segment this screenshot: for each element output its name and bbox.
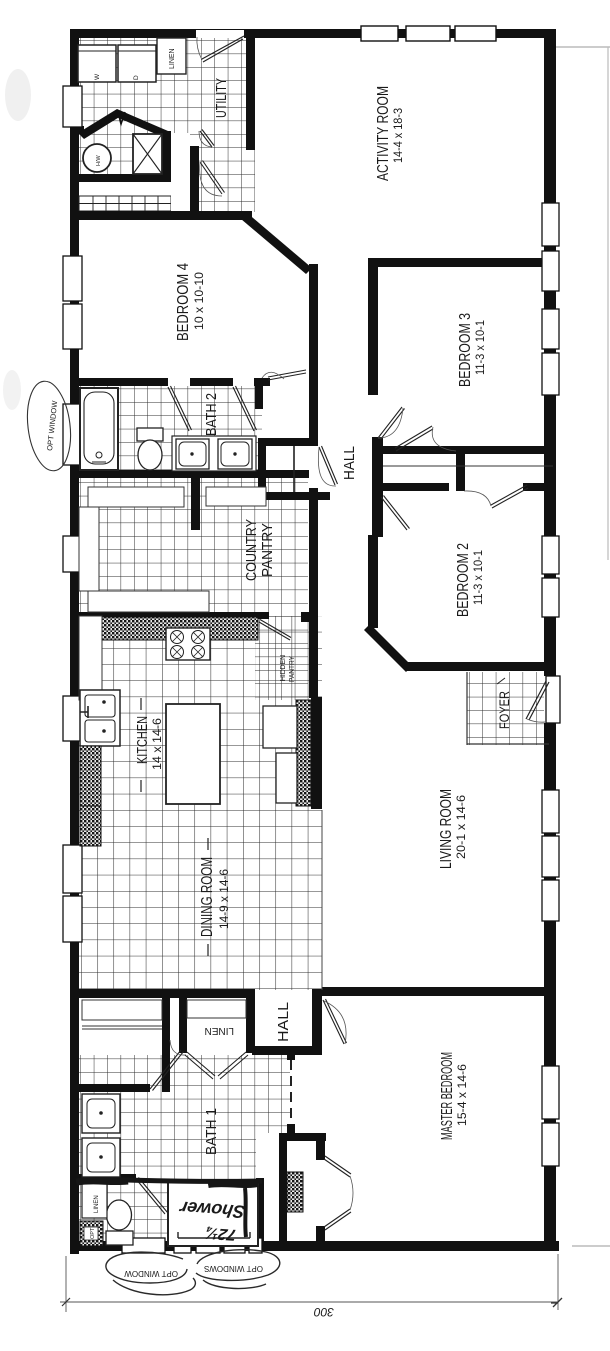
svg-text:HALL: HALL [341,446,358,480]
svg-text:DINING ROOM: DINING ROOM [199,857,216,937]
svg-text:11-3 x 10-1: 11-3 x 10-1 [475,320,487,375]
svg-text:HALL: HALL [275,1002,292,1042]
svg-text:OPT: OPT [90,1227,96,1239]
svg-text:W: W [94,73,101,80]
svg-text:15-4 x 14-6: 15-4 x 14-6 [457,1064,469,1126]
svg-text:11-3 x 10-1: 11-3 x 10-1 [473,550,485,605]
svg-text:PANTRY: PANTRY [259,523,276,577]
svg-text:H/W: H/W [96,155,102,167]
svg-text:COUNTRY: COUNTRY [243,519,260,581]
svg-text:BEDROOM 4: BEDROOM 4 [175,263,192,341]
svg-text:LINEN: LINEN [169,48,176,69]
svg-text:BATH 2: BATH 2 [203,393,220,436]
svg-text:UTILITY: UTILITY [213,78,230,118]
svg-text:BATH 1: BATH 1 [203,1108,220,1155]
svg-text:ACTIVITY ROOM: ACTIVITY ROOM [375,86,392,181]
svg-text:FOYER: FOYER [496,691,512,729]
svg-text:OPT WINDOWS: OPT WINDOWS [204,1264,263,1273]
svg-text:20-1 x 14-6: 20-1 x 14-6 [456,795,468,859]
svg-text:OPT WINDOW: OPT WINDOW [124,1269,178,1278]
svg-text:LIVING ROOM: LIVING ROOM [438,789,455,869]
svg-text:14-4 x 18-3: 14-4 x 18-3 [393,108,405,163]
svg-text:14 x 14-6: 14 x 14-6 [152,718,164,770]
svg-text:LINEN: LINEN [205,1025,234,1036]
svg-text:HIDDEN: HIDDEN [278,655,287,681]
svg-text:MASTER BEDROOM: MASTER BEDROOM [439,1052,456,1140]
svg-text:KITCHEN: KITCHEN [134,716,151,764]
svg-text:LINEN: LINEN [94,1195,100,1213]
svg-text:72¼: 72¼ [204,1224,238,1244]
svg-text:14-9 x 14-6: 14-9 x 14-6 [219,869,231,929]
svg-text:PANTRY: PANTRY [287,656,296,682]
svg-text:BEDROOM 3: BEDROOM 3 [457,313,474,387]
svg-text:D: D [133,75,140,80]
svg-text:300: 300 [314,1305,334,1319]
svg-text:10 x 10-10: 10 x 10-10 [194,272,206,330]
svg-text:BEDROOM 2: BEDROOM 2 [455,543,472,617]
